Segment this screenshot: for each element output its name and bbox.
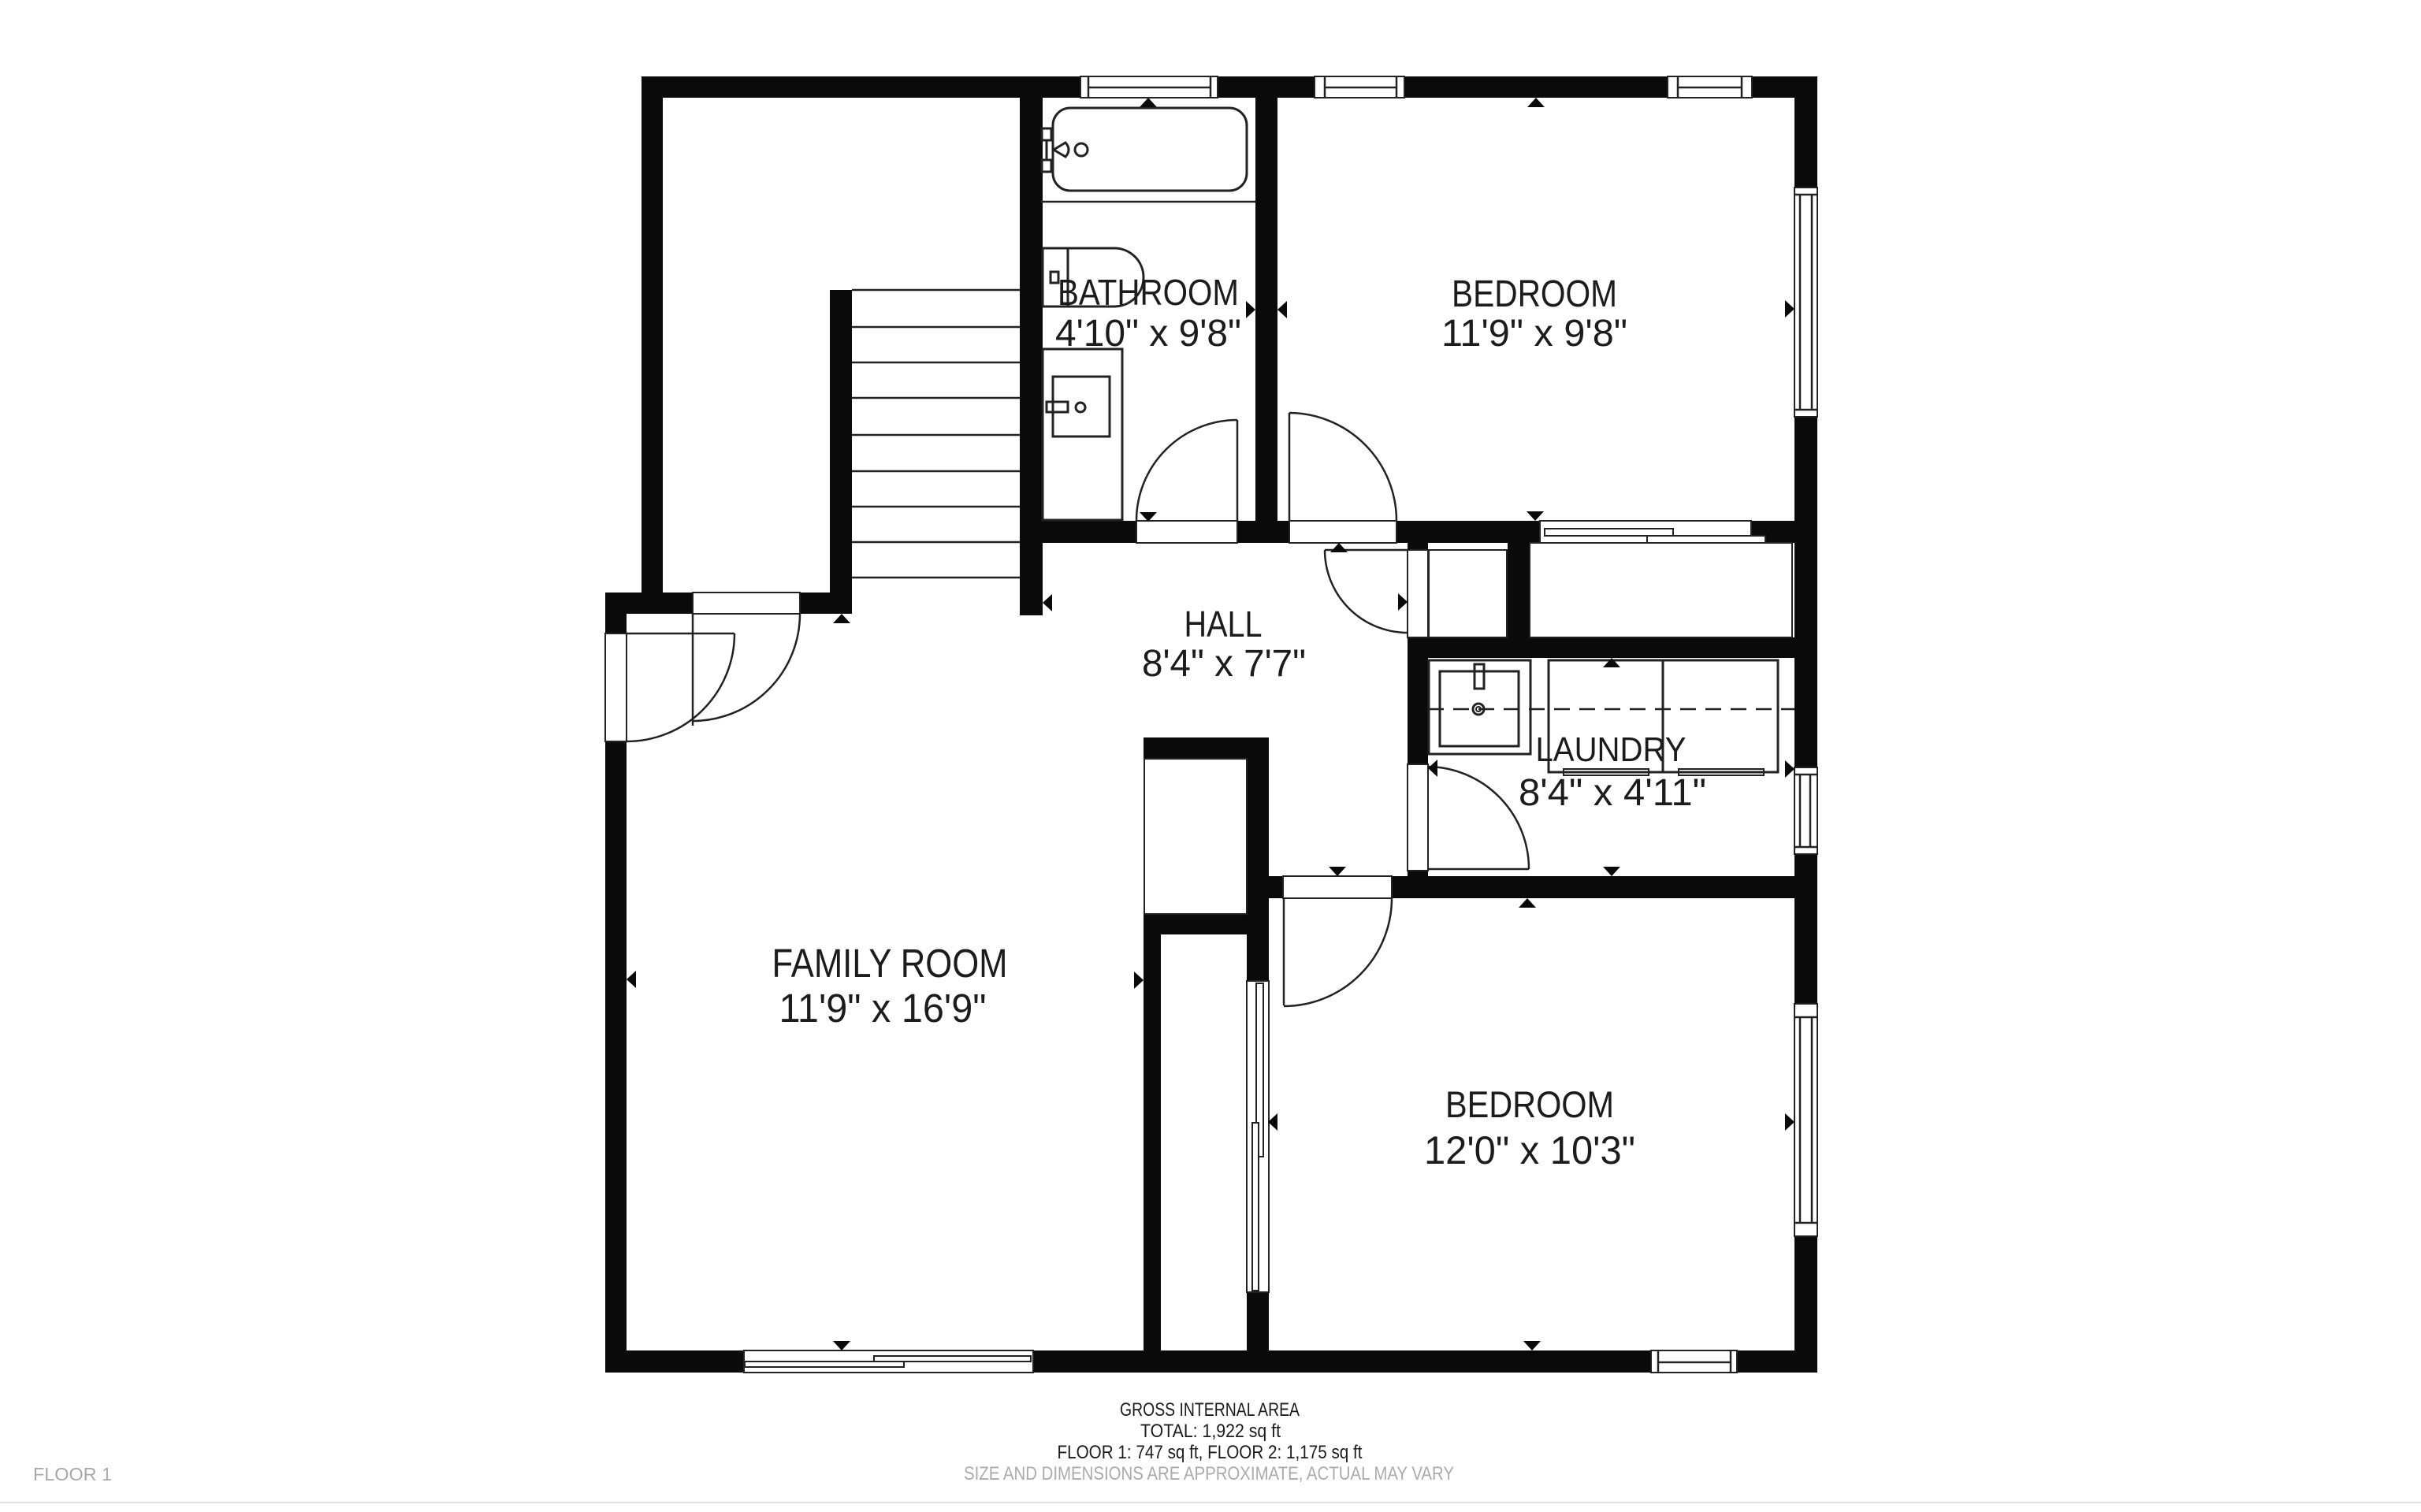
svg-text:LAUNDRY: LAUNDRY — [1536, 730, 1687, 769]
svg-text:12'0" x 10'3": 12'0" x 10'3" — [1424, 1128, 1635, 1172]
svg-text:GROSS INTERNAL AREA: GROSS INTERNAL AREA — [1120, 1399, 1300, 1421]
svg-text:SIZE AND DIMENSIONS ARE APPROX: SIZE AND DIMENSIONS ARE APPROXIMATE, ACT… — [964, 1463, 1454, 1484]
svg-text:TOTAL: 1,922 sq ft: TOTAL: 1,922 sq ft — [1140, 1421, 1281, 1442]
svg-text:11'9" x 9'8": 11'9" x 9'8" — [1441, 313, 1627, 355]
svg-text:FLOOR 1: 747 sq ft, FLOOR 2: 1: FLOOR 1: 747 sq ft, FLOOR 2: 1,175 sq ft — [1058, 1442, 1363, 1463]
svg-text:HALL: HALL — [1184, 604, 1263, 645]
svg-text:11'9" x 16'9": 11'9" x 16'9" — [779, 986, 987, 1031]
svg-text:FLOOR 1: FLOOR 1 — [33, 1464, 112, 1484]
svg-text:4'10" x 9'8": 4'10" x 9'8" — [1055, 313, 1241, 355]
svg-text:BATHROOM: BATHROOM — [1058, 272, 1239, 313]
svg-text:8'4" x 7'7": 8'4" x 7'7" — [1142, 643, 1306, 685]
svg-text:BEDROOM: BEDROOM — [1445, 1083, 1614, 1125]
svg-text:BEDROOM: BEDROOM — [1452, 273, 1617, 315]
svg-text:8'4" x 4'11": 8'4" x 4'11" — [1519, 772, 1706, 814]
svg-text:FAMILY ROOM: FAMILY ROOM — [772, 941, 1008, 986]
